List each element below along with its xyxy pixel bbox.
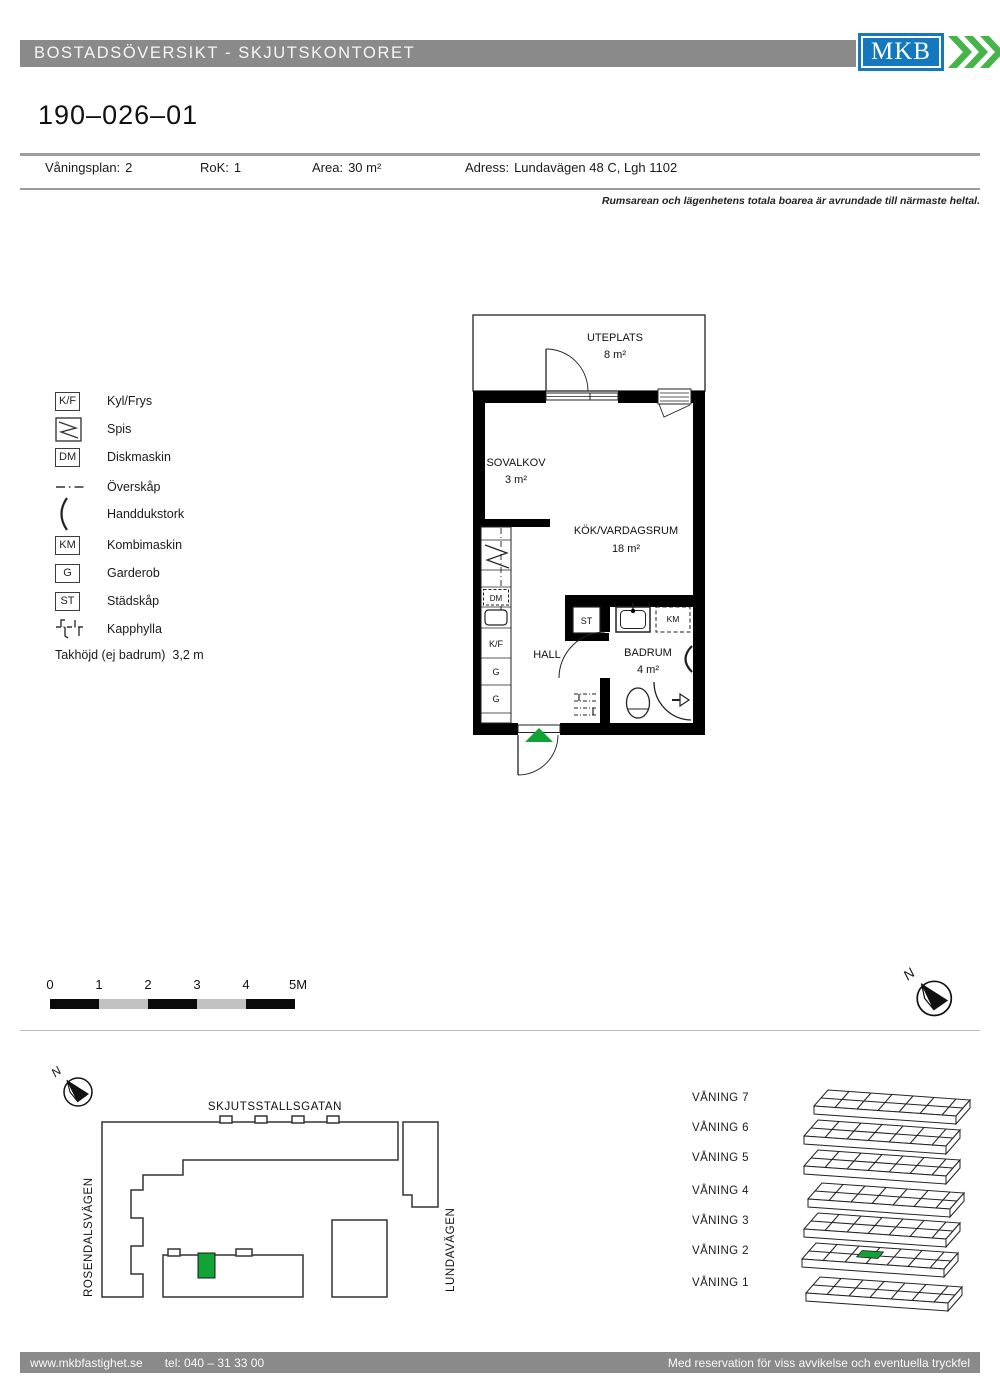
g2-label: G bbox=[492, 694, 499, 704]
toilet bbox=[627, 688, 650, 718]
kitchen-sink-symbol bbox=[485, 610, 507, 625]
room-kok: KÖK/VARDAGSRUM bbox=[574, 525, 678, 537]
legend-row-garderob: G Garderob bbox=[55, 560, 160, 586]
mkb-logo-box: MKB bbox=[858, 33, 944, 71]
divider-top bbox=[20, 153, 980, 156]
legend-row-spis: Spis bbox=[55, 416, 131, 442]
floors-stack: VÅNING 7 VÅNING 6 VÅNING 5 VÅNING 4 VÅNI… bbox=[692, 1086, 992, 1326]
washer-icon: KM bbox=[55, 536, 80, 555]
st-label: ST bbox=[581, 616, 593, 626]
stove-icon bbox=[55, 417, 82, 442]
mkb-chevrons-icon bbox=[948, 33, 1000, 71]
floor-plan: DM K/F G G ST KM bbox=[468, 300, 713, 800]
wall-hatch bbox=[658, 389, 691, 417]
footer-disclaimer: Med reservation för viss avvikelse och e… bbox=[668, 1356, 970, 1370]
ceiling-height-note: Takhöjd (ej badrum) 3,2 m bbox=[55, 648, 204, 662]
floor-label-3: VÅNING 3 bbox=[692, 1215, 749, 1227]
km-label: KM bbox=[667, 614, 680, 624]
g1-label: G bbox=[492, 667, 499, 677]
mkb-logo: MKB bbox=[858, 33, 1000, 71]
legend-row-handdukstork: Handdukstork bbox=[55, 496, 184, 532]
towel-rail-icon bbox=[55, 496, 71, 532]
site-unit-marker bbox=[198, 1253, 215, 1278]
street-right: LUNDAVÄGEN bbox=[445, 1208, 457, 1292]
uteplats-outline bbox=[473, 315, 705, 391]
scale-0: 0 bbox=[46, 977, 53, 992]
floor-label-4: VÅNING 4 bbox=[692, 1185, 749, 1197]
section-divider bbox=[20, 1030, 980, 1031]
room-uteplats-area: 8 m² bbox=[604, 349, 626, 361]
street-top: SKJUTSSTALLSGATAN bbox=[208, 1101, 342, 1113]
info-row: Våningsplan:2 RoK:1 Area:30 m² Adress:Lu… bbox=[20, 160, 980, 182]
coat-rack-icon bbox=[55, 617, 85, 641]
footer-website: www.mkbfastighet.se bbox=[30, 1356, 143, 1370]
wardrobe-icon: G bbox=[55, 564, 80, 583]
info-address: Adress:Lundavägen 48 C, Lgh 1102 bbox=[465, 160, 677, 175]
info-floor: Våningsplan:2 bbox=[45, 160, 132, 175]
wall-cabinet-icon bbox=[55, 483, 87, 491]
legend-row-kapphylla: Kapphylla bbox=[55, 616, 162, 642]
legend-row-stadskap: ST Städskåp bbox=[55, 588, 159, 614]
floor-label-5: VÅNING 5 bbox=[692, 1152, 749, 1164]
room-badrum-area: 4 m² bbox=[637, 664, 659, 676]
floor-label-7: VÅNING 7 bbox=[692, 1092, 749, 1104]
dishwasher-icon: DM bbox=[55, 448, 80, 467]
header-bar: BOSTADSÖVERSIKT - SKJUTSKONTORET bbox=[20, 40, 856, 67]
entrance bbox=[518, 725, 560, 775]
room-hall: HALL bbox=[533, 649, 561, 661]
door-direction-arrow-icon bbox=[680, 694, 689, 706]
scale-1: 1 bbox=[95, 977, 102, 992]
room-sovalkov: SOVALKOV bbox=[486, 457, 546, 469]
divider-bottom bbox=[20, 188, 980, 190]
scale-2: 2 bbox=[144, 977, 151, 992]
dm-label: DM bbox=[490, 594, 503, 603]
footer-bar: www.mkbfastighet.se tel: 040 – 31 33 00 … bbox=[20, 1352, 980, 1373]
towel-rail-symbol bbox=[686, 646, 693, 672]
scale-3: 3 bbox=[193, 977, 200, 992]
scale-bar: 0 1 2 3 4 5M bbox=[40, 975, 340, 1017]
site-compass-icon: N bbox=[49, 1063, 92, 1106]
north-compass-icon: N bbox=[898, 960, 962, 1024]
room-uteplats: UTEPLATS bbox=[587, 332, 643, 344]
rounding-note: Rumsarean och lägenhetens totala boarea … bbox=[20, 195, 980, 207]
legend-row-kombimaskin: KM Kombimaskin bbox=[55, 532, 182, 558]
site-map: SKJUTSSTALLSGATAN ROSENDALSVÄGEN LUNDAVÄ… bbox=[40, 1060, 480, 1310]
floor-label-6: VÅNING 6 bbox=[692, 1122, 749, 1134]
floor-label-1: VÅNING 1 bbox=[692, 1277, 749, 1289]
floor-label-2: VÅNING 2 bbox=[692, 1245, 749, 1257]
legend-row-diskmaskin: DM Diskmaskin bbox=[55, 444, 171, 470]
floors-isometric bbox=[792, 1080, 977, 1326]
site-compass-n-label: N bbox=[49, 1063, 65, 1080]
bathroom-fixtures bbox=[616, 603, 692, 720]
document-page: BOSTADSÖVERSIKT - SKJUTSKONTORET MKB 190… bbox=[0, 0, 1000, 1400]
scale-4: 4 bbox=[242, 977, 249, 992]
info-area: Area:30 m² bbox=[312, 160, 381, 175]
footer-phone: tel: 040 – 31 33 00 bbox=[165, 1356, 264, 1370]
compass-n-label: N bbox=[900, 964, 919, 983]
cleaning-closet-icon: ST bbox=[55, 592, 80, 611]
room-kok-area: 18 m² bbox=[612, 543, 640, 555]
mkb-logo-text: MKB bbox=[871, 38, 931, 66]
legend-row-kylfrys: K/F Kyl/Frys bbox=[55, 388, 152, 414]
info-rok: RoK:1 bbox=[200, 160, 241, 175]
room-badrum: BADRUM bbox=[624, 647, 672, 659]
apartment-id: 190–026–01 bbox=[38, 100, 198, 131]
kf-label: K/F bbox=[489, 639, 504, 649]
coat-rack-symbol bbox=[574, 694, 598, 715]
fridge-freezer-icon: K/F bbox=[55, 392, 80, 411]
header-title: BOSTADSÖVERSIKT - SKJUTSKONTORET bbox=[34, 44, 415, 63]
site-buildings bbox=[102, 1116, 438, 1297]
floor-unit-marker bbox=[857, 1251, 884, 1259]
scale-5: 5M bbox=[289, 977, 307, 992]
room-sovalkov-area: 3 m² bbox=[505, 474, 527, 486]
street-left: ROSENDALSVÄGEN bbox=[83, 1177, 95, 1297]
